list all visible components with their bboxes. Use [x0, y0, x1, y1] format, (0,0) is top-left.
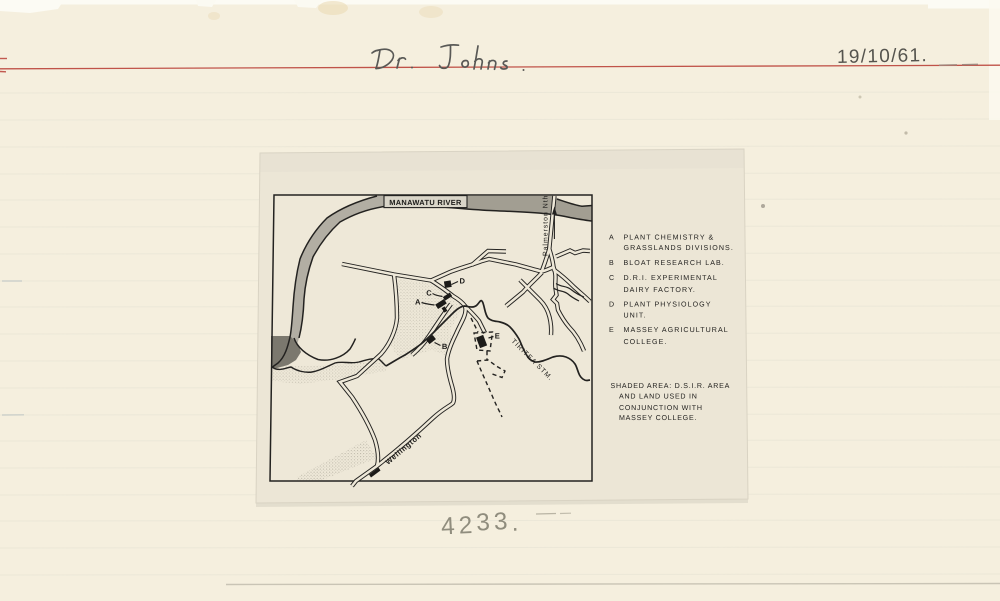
svg-text:B: B — [442, 342, 448, 351]
svg-text:E: E — [495, 332, 500, 341]
svg-text:A: A — [609, 233, 615, 241]
svg-text:E: E — [609, 326, 615, 334]
svg-text:BLOAT RESEARCH LAB.: BLOAT RESEARCH LAB. — [624, 259, 725, 267]
svg-text:A: A — [415, 298, 421, 307]
svg-text:MASSEY AGRICULTURAL: MASSEY AGRICULTURAL — [624, 326, 729, 334]
svg-text:B: B — [609, 259, 615, 267]
svg-text:UNIT.: UNIT. — [624, 312, 647, 320]
svg-text:PLANT PHYSIOLOGY: PLANT PHYSIOLOGY — [624, 301, 712, 309]
svg-text:D: D — [609, 301, 615, 309]
svg-text:PLANT CHEMISTRY &: PLANT CHEMISTRY & — [624, 233, 715, 241]
svg-text:D: D — [460, 276, 466, 285]
svg-text:Palmerston Nth: Palmerston Nth — [543, 195, 550, 257]
svg-text:19/10/61.: 19/10/61. — [837, 45, 928, 68]
svg-text:C: C — [426, 289, 432, 298]
svg-text:MANAWATU RIVER: MANAWATU RIVER — [389, 198, 462, 207]
svg-text:AND LAND USED IN: AND LAND USED IN — [619, 393, 698, 401]
svg-text:C: C — [609, 274, 615, 282]
svg-text:MASSEY COLLEGE.: MASSEY COLLEGE. — [619, 414, 697, 422]
svg-text:D.R.I. EXPERIMENTAL: D.R.I. EXPERIMENTAL — [624, 274, 718, 282]
svg-text:SHADED AREA: D.S.I.R. AREA: SHADED AREA: D.S.I.R. AREA — [611, 382, 731, 390]
svg-text:DAIRY FACTORY.: DAIRY FACTORY. — [624, 286, 696, 294]
svg-text:COLLEGE.: COLLEGE. — [624, 338, 668, 346]
svg-text:GRASSLANDS DIVISIONS.: GRASSLANDS DIVISIONS. — [624, 244, 734, 252]
svg-text:CONJUNCTION WITH: CONJUNCTION WITH — [619, 404, 703, 412]
